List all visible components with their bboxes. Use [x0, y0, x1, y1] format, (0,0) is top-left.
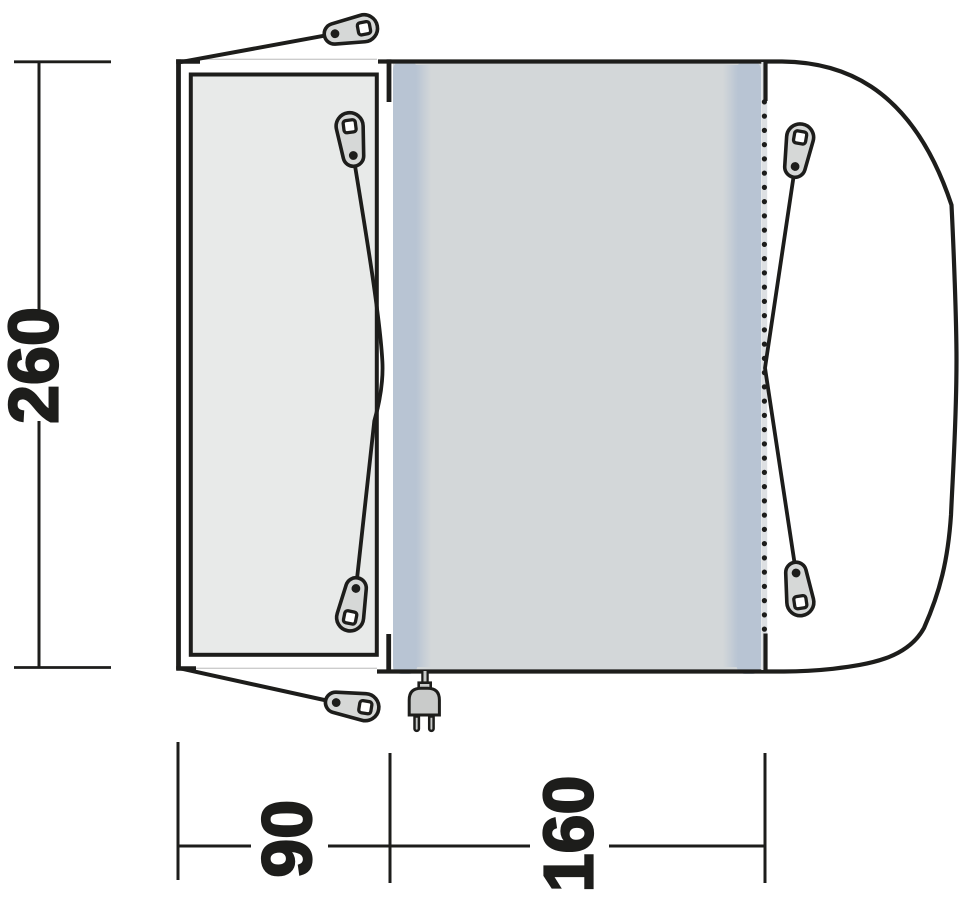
svg-text:260: 260	[0, 307, 73, 424]
svg-text:90: 90	[248, 800, 326, 878]
svg-text:160: 160	[530, 776, 608, 893]
